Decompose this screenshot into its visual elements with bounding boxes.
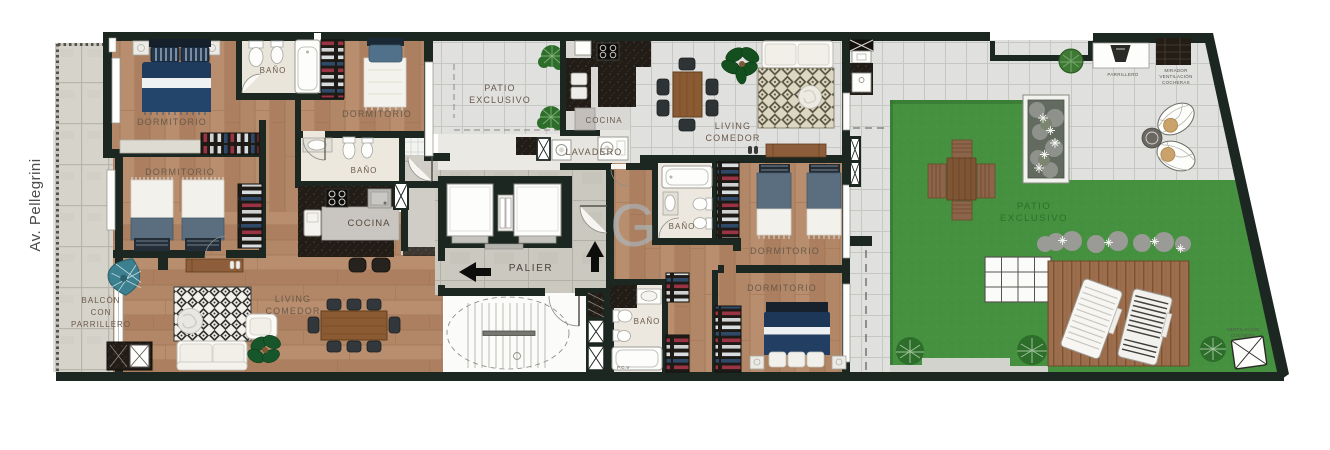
svg-text:EXCLUSIVO: EXCLUSIVO <box>469 95 531 105</box>
svg-text:DORMITORIO: DORMITORIO <box>145 167 215 177</box>
svg-text:PARRILLERO: PARRILLERO <box>71 320 131 329</box>
svg-text:PATIO: PATIO <box>484 83 515 93</box>
svg-text:BAÑO: BAÑO <box>260 66 287 75</box>
svg-text:CON: CON <box>91 308 112 317</box>
svg-text:P.C.V: P.C.V <box>617 365 630 370</box>
svg-text:BAÑO: BAÑO <box>634 317 661 326</box>
svg-text:BAÑO: BAÑO <box>351 166 378 175</box>
svg-text:G: G <box>610 192 657 259</box>
svg-text:VENTILACIÓN: VENTILACIÓN <box>1226 326 1259 332</box>
svg-text:VENTILACIÓN: VENTILACIÓN <box>1159 73 1192 79</box>
svg-text:COMEDOR: COMEDOR <box>265 306 320 316</box>
svg-text:COMEDOR: COMEDOR <box>705 133 760 143</box>
svg-text:LIVING: LIVING <box>715 121 751 131</box>
svg-text:DORMITORIO: DORMITORIO <box>750 246 820 256</box>
svg-text:PATIO: PATIO <box>1017 201 1052 212</box>
svg-text:Av. Pellegrini: Av. Pellegrini <box>27 158 44 251</box>
svg-text:BAÑO: BAÑO <box>669 222 696 231</box>
svg-text:DORMITORIO: DORMITORIO <box>342 109 412 119</box>
svg-text:MIRADOR: MIRADOR <box>1164 68 1188 73</box>
svg-text:DORMITORIO: DORMITORIO <box>747 283 817 293</box>
svg-text:BALCÓN: BALCÓN <box>82 296 121 305</box>
svg-text:LIVING: LIVING <box>275 294 311 304</box>
svg-text:COCHERAS: COCHERAS <box>1162 80 1190 85</box>
svg-text:PARRILLERO: PARRILLERO <box>1107 72 1138 77</box>
svg-text:DORMITORIO: DORMITORIO <box>137 117 207 127</box>
svg-text:PALIER: PALIER <box>509 263 553 274</box>
svg-text:LAVADERO: LAVADERO <box>566 147 623 157</box>
svg-text:COCINA: COCINA <box>348 218 391 229</box>
svg-text:COCINA: COCINA <box>585 116 622 125</box>
svg-text:EXCLUSIVO: EXCLUSIVO <box>1000 213 1068 224</box>
svg-text:COCHERA: COCHERA <box>1231 333 1256 338</box>
